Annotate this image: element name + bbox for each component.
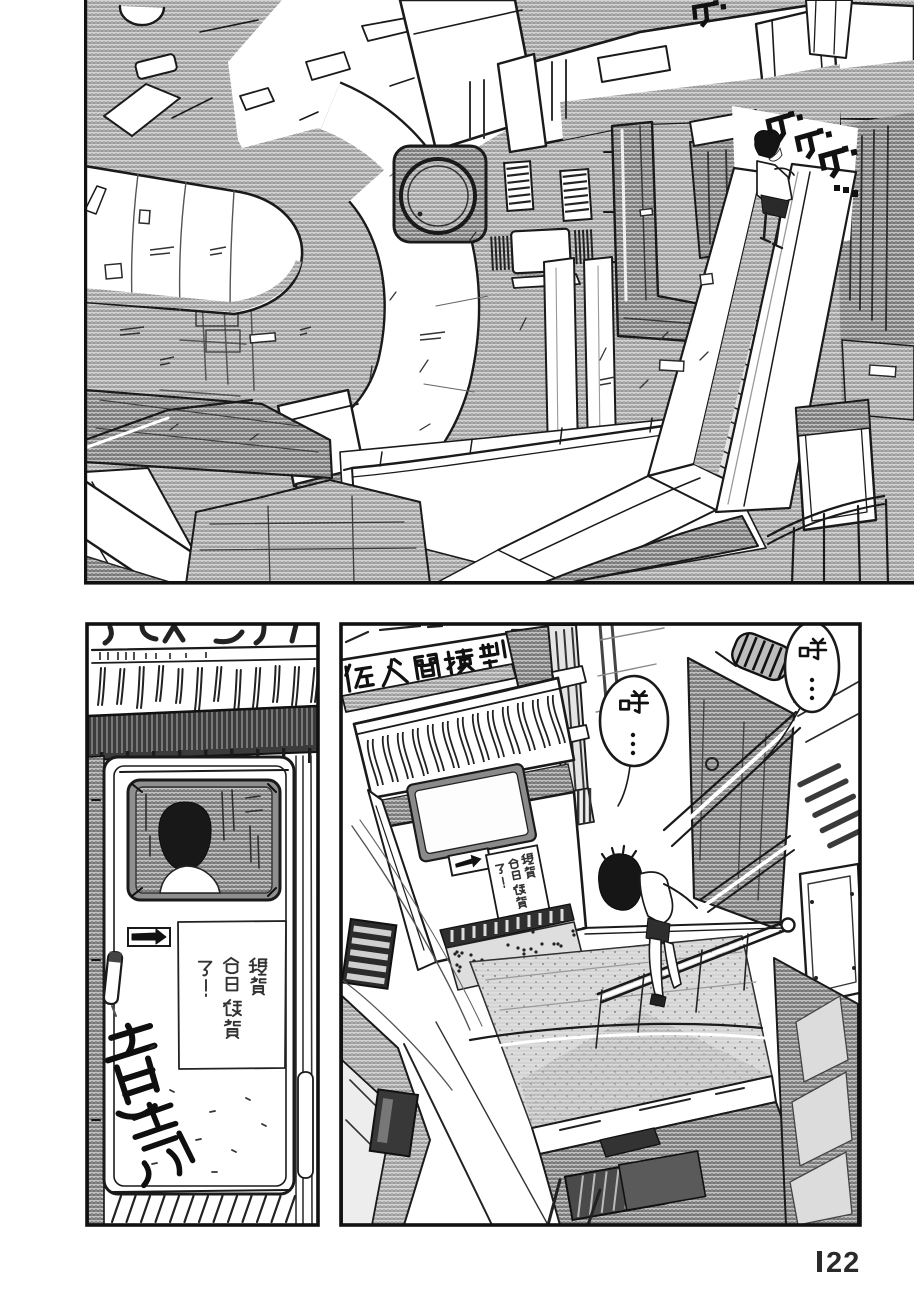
svg-text:22: 22 [826,1247,860,1279]
